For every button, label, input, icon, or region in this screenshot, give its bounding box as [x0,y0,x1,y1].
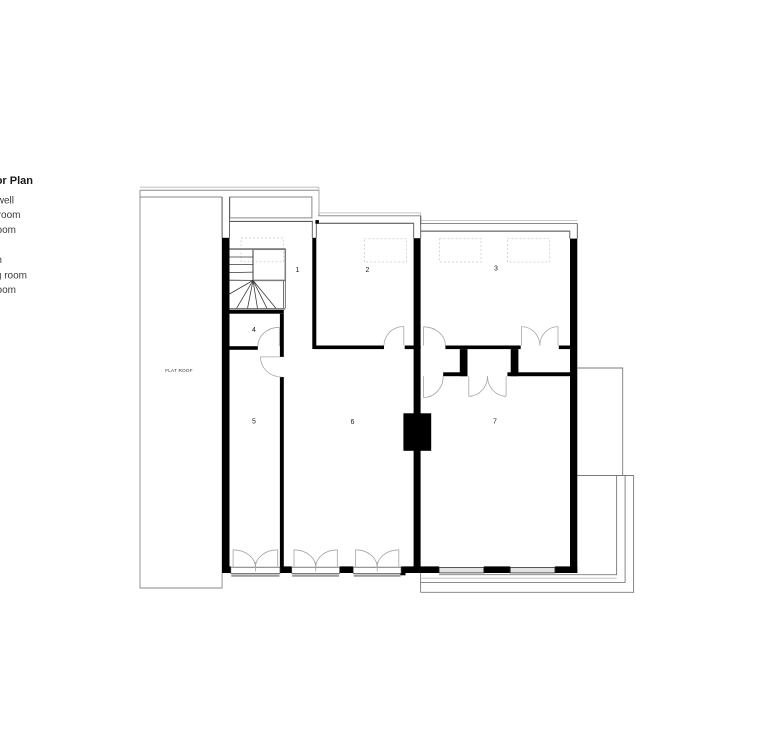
svg-text:Living room: Living room [0,270,27,281]
svg-text:3: 3 [494,266,498,273]
svg-text:1: 1 [295,267,299,274]
svg-text:Bathroom: Bathroom [0,255,2,266]
svg-text:4: 4 [252,327,256,334]
svg-text:Stairwell: Stairwell [0,195,14,206]
svg-text:Bedroom: Bedroom [0,210,21,221]
svg-text:7: 7 [493,419,497,426]
svg-text:FLAT ROOF: FLAT ROOF [165,368,193,373]
svg-text:2: 2 [366,267,370,274]
svg-text:Floor Plan: Floor Plan [0,175,33,187]
svg-text:5: 5 [252,419,256,426]
svg-text:Bedroom: Bedroom [0,225,16,236]
svg-text:6: 6 [351,419,355,426]
svg-text:Bedroom: Bedroom [0,285,16,296]
